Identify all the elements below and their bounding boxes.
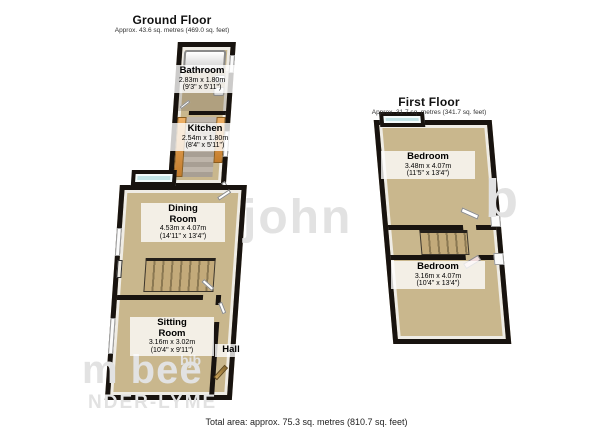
- landing-doorframe-bottom: [493, 253, 504, 265]
- landing-wall-bottom: [391, 255, 466, 260]
- ground-floor-rear-wing: [168, 42, 236, 188]
- first-floor-title: First Floor: [349, 95, 509, 109]
- total-area-caption: Total area: approx. 75.3 sq. metres (810…: [12, 417, 601, 427]
- room-size-imperial: (14'11" x 13'4"): [143, 233, 223, 241]
- room-size-metric: 3.16m x 3.02m: [132, 339, 212, 347]
- dining-bay-window: [131, 170, 177, 186]
- room-name: Hall: [217, 345, 245, 356]
- room-label-bedroom-one: Bedroom 3.48m x 4.07m (11'5" x 13'4"): [381, 151, 475, 179]
- hall-door: [218, 302, 226, 315]
- first-floor-plan: [360, 112, 531, 352]
- room-size-imperial: (10'4" x 9'11"): [132, 347, 212, 355]
- watermark-text: john: [243, 190, 352, 245]
- dining-kitchen-door: [217, 189, 231, 200]
- bedroom-one-door: [461, 207, 480, 219]
- watermark-text: b: [485, 168, 518, 230]
- room-size-metric: 3.16m x 4.07m: [393, 273, 483, 281]
- landing-staircase: [419, 230, 469, 255]
- room-name: Sitting Room: [149, 318, 195, 339]
- room-size-imperial: (10'4" x 13'4"): [393, 280, 483, 288]
- staircase: [143, 258, 215, 292]
- dining-sitting-wall: [117, 295, 203, 300]
- room-label-dining-room: Dining Room 4.53m x 4.07m (14'11" x 13'4…: [141, 203, 225, 242]
- chimney-breast: [116, 260, 122, 278]
- watermark-text: NDER-LYME: [88, 392, 217, 414]
- room-size-imperial: (8'4" x 5'11"): [169, 142, 241, 150]
- room-size-imperial: (9'3" x 5'11"): [167, 84, 237, 92]
- room-label-hall: Hall: [215, 344, 247, 357]
- floorplan-page: Ground Floor Approx. 43.6 sq. metres (46…: [0, 0, 601, 437]
- room-size-metric: 4.53m x 4.07m: [143, 225, 223, 233]
- room-size-metric: 3.48m x 4.07m: [383, 163, 473, 171]
- room-size-metric: 2.83m x 1.80m: [167, 77, 237, 85]
- room-name: Dining Room: [160, 204, 206, 225]
- room-size-metric: 2.54m x 1.80m: [169, 135, 241, 143]
- room-label-kitchen: Kitchen 2.54m x 1.80m (8'4" x 5'11"): [167, 123, 243, 151]
- room-name: Kitchen: [169, 124, 241, 135]
- room-size-imperial: (11'5" x 13'4"): [383, 170, 473, 178]
- room-label-bedroom-two: Bedroom 3.16m x 4.07m (10'4" x 13'4"): [391, 261, 485, 289]
- dining-window: [115, 228, 122, 256]
- room-label-bathroom: Bathroom 2.83m x 1.80m (9'3" x 5'11"): [165, 65, 239, 93]
- room-name: Bathroom: [167, 66, 237, 77]
- ground-floor-subtitle: Approx. 43.6 sq. metres (469.0 sq. feet): [92, 27, 252, 34]
- bathroom-kitchen-wall: [189, 111, 226, 115]
- ground-floor-title: Ground Floor: [92, 13, 252, 27]
- room-name: Bedroom: [393, 262, 483, 273]
- room-name: Bedroom: [383, 152, 473, 163]
- room-label-sitting-room: Sitting Room 3.16m x 3.02m (10'4" x 9'11…: [130, 317, 214, 356]
- first-floor-subtitle: Approx. 31.7 sq. metres (341.7 sq. feet): [349, 109, 509, 116]
